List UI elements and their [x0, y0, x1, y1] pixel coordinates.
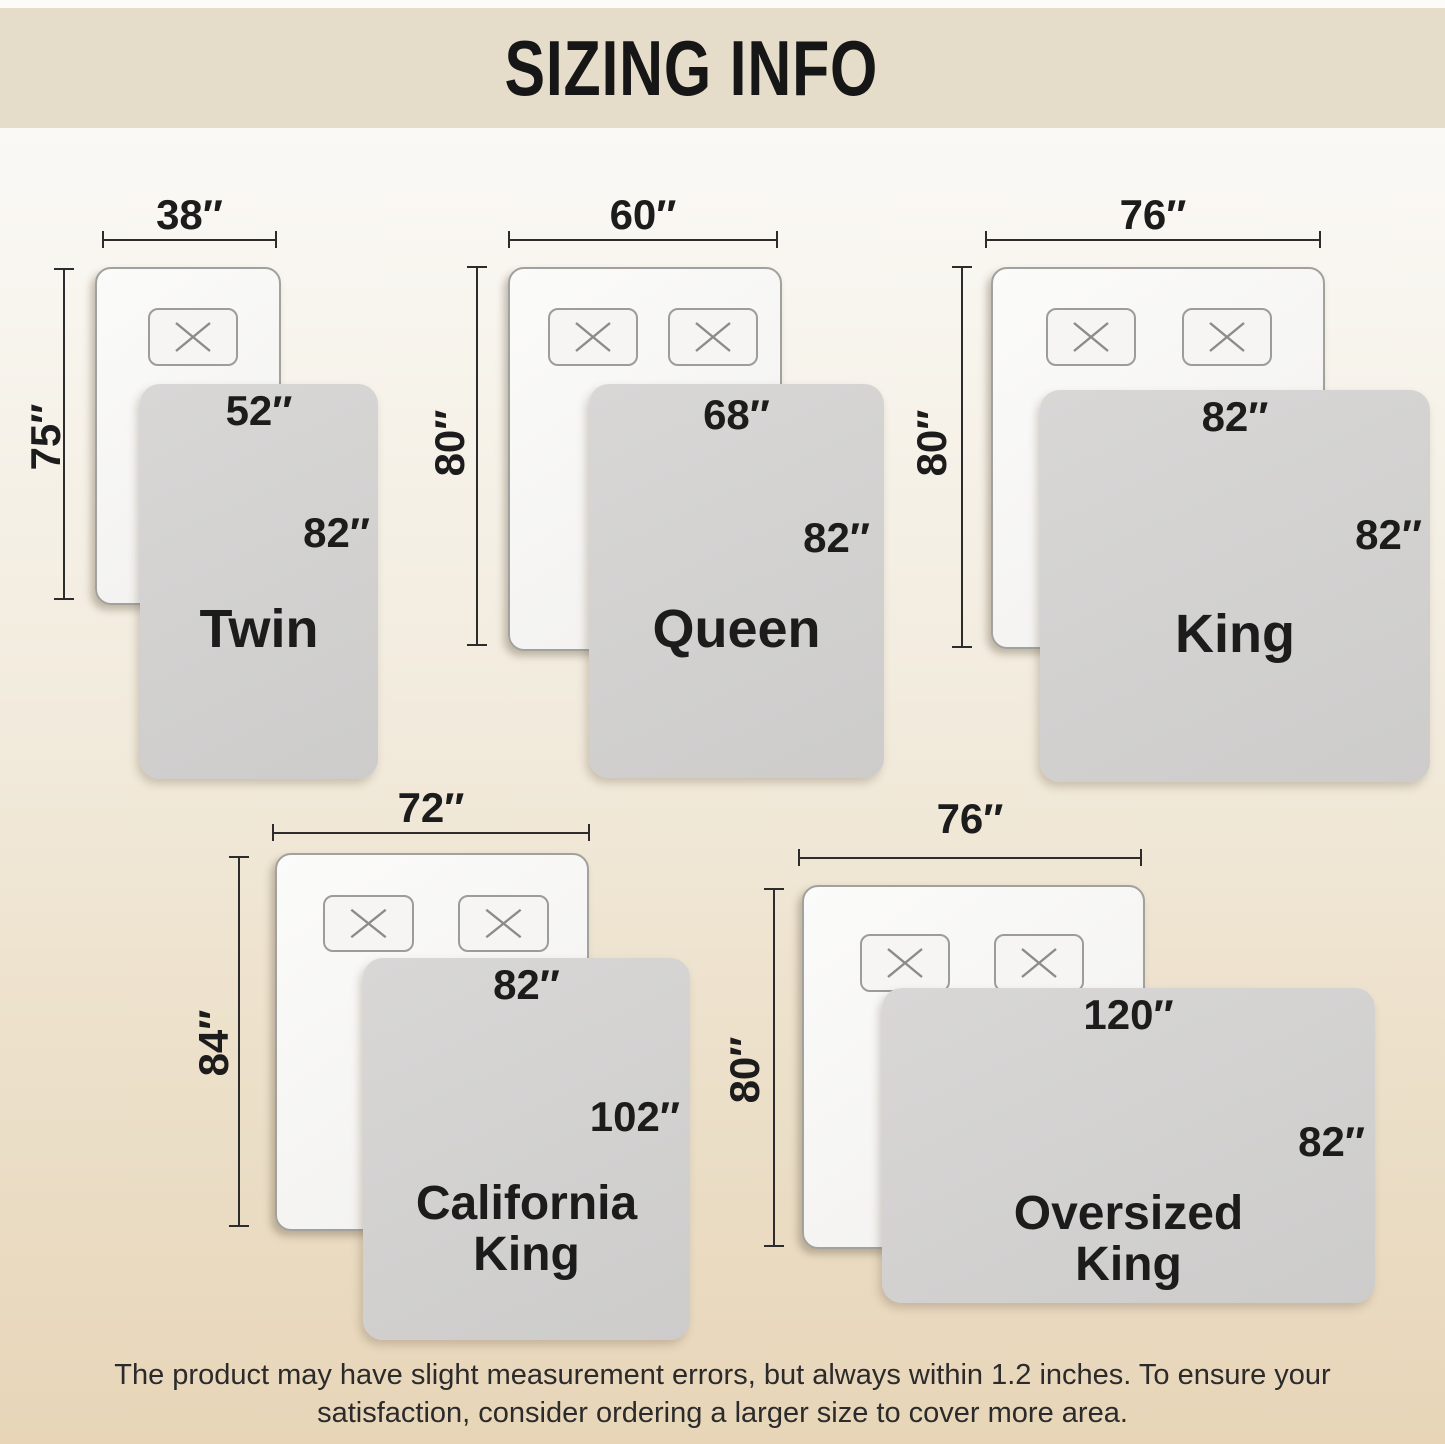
pillow-x-icon [860, 934, 950, 992]
bed-diagram-oversized-king: 76″ 80″ 120″ 82″ Oversized King [0, 0, 1445, 1444]
blanket-swatch: 120″ 82″ Oversized King [882, 988, 1375, 1303]
sizing-infographic: SIZING INFO 38″ 75″ 52″ 82″ Twin 60″ 80″ [0, 0, 1445, 1444]
disclaimer-note: The product may have slight measurement … [0, 1356, 1445, 1432]
bed-size-name: Oversized King [972, 1188, 1285, 1290]
pillow-x-icon [994, 934, 1084, 992]
disclaimer-line-1: The product may have slight measurement … [0, 1356, 1445, 1394]
blanket-width-label: 120″ [882, 992, 1375, 1038]
disclaimer-line-2: satisfaction, consider ordering a larger… [0, 1394, 1445, 1432]
width-dimension-line [798, 857, 1142, 859]
length-dimension-line [773, 888, 775, 1247]
blanket-length-label: 82″ [1298, 1119, 1365, 1165]
mattress-width-label: 76″ [798, 796, 1142, 842]
mattress-length-label: 80″ [722, 1024, 768, 1116]
